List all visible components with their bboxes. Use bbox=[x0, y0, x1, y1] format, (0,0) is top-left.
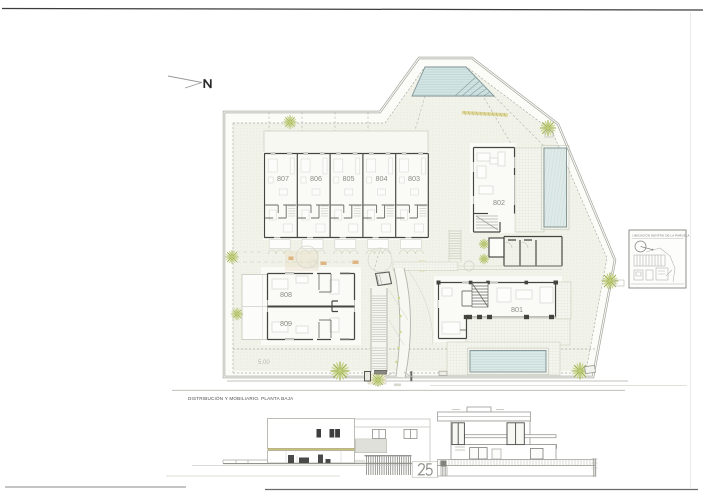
svg-text:806: 806 bbox=[310, 174, 322, 183]
svg-text:DISTRIBUCIÓN Y MOBILIARIO. PLA: DISTRIBUCIÓN Y MOBILIARIO. PLANTA BAJA bbox=[188, 395, 294, 401]
svg-text:5.00: 5.00 bbox=[258, 360, 270, 366]
svg-text:801: 801 bbox=[511, 305, 523, 314]
svg-text:805: 805 bbox=[343, 174, 355, 183]
svg-text:809: 809 bbox=[280, 319, 292, 328]
svg-text:807: 807 bbox=[277, 174, 289, 183]
svg-text:804: 804 bbox=[376, 174, 388, 183]
svg-text:808: 808 bbox=[280, 290, 292, 299]
svg-text:802: 802 bbox=[493, 198, 505, 207]
svg-text:UBICACIÓN DENTRO DE LA PARCELA: UBICACIÓN DENTRO DE LA PARCELA bbox=[633, 233, 690, 238]
svg-text:803: 803 bbox=[408, 174, 420, 183]
